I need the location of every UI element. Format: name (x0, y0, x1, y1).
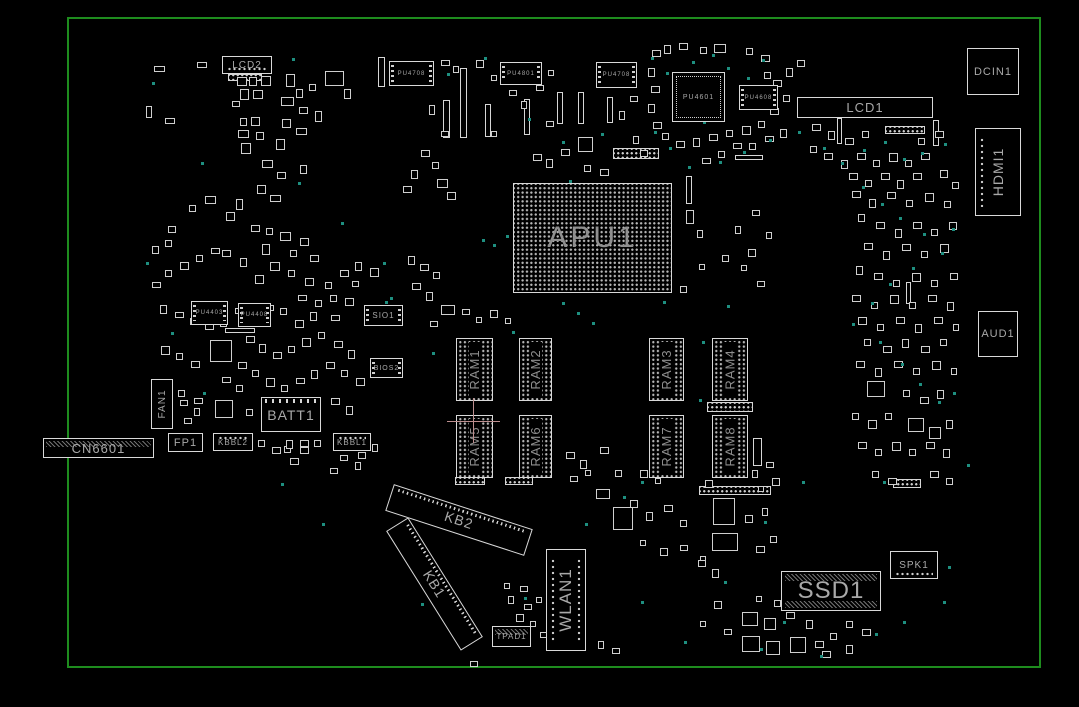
small-part (441, 305, 455, 315)
component-label-kbbl2: KBBL2 (214, 434, 252, 450)
via-dot (666, 72, 669, 75)
small-part (165, 118, 175, 124)
small-part (615, 470, 622, 477)
via-dot (421, 603, 424, 606)
component-label-ssd1: SSD1 (782, 572, 880, 610)
small-part (735, 226, 741, 234)
small-part (858, 442, 867, 449)
small-part (408, 256, 415, 265)
small-part (921, 251, 928, 258)
small-part (888, 478, 897, 485)
small-part (718, 151, 725, 158)
small-part (168, 226, 176, 233)
small-part (953, 324, 959, 331)
via-dot (883, 481, 886, 484)
small-part (226, 212, 235, 221)
component-apu1[interactable]: APU1 (513, 183, 672, 293)
component-label-kbbl1: KBBL1 (334, 434, 370, 450)
small-part (758, 486, 764, 492)
slot-footprint (557, 92, 563, 124)
component-lcd1[interactable]: LCD1 (797, 97, 933, 118)
component-cn6601[interactable]: CN6601 (43, 438, 154, 458)
small-part (358, 452, 366, 459)
small-part (700, 621, 706, 627)
small-part (865, 180, 872, 187)
component-spk1[interactable]: SPK1 (890, 551, 938, 579)
small-part (881, 173, 890, 180)
small-part (258, 440, 265, 447)
small-part (702, 158, 711, 164)
component-tpad1[interactable]: TPAD1 (492, 626, 531, 647)
small-part (259, 344, 266, 353)
component-label-ram2: RAM2 (505, 354, 566, 385)
small-part (612, 648, 620, 654)
small-part (240, 258, 247, 267)
via-dot (654, 131, 657, 134)
component-kbbl2[interactable]: KBBL2 (213, 433, 253, 451)
small-part (874, 273, 883, 280)
via-dot (702, 341, 705, 344)
component-pu4708-b[interactable]: PU4708 (596, 62, 637, 88)
small-part (281, 97, 294, 106)
small-part (908, 418, 924, 432)
small-part (521, 101, 527, 109)
small-part (896, 317, 905, 324)
small-part (662, 133, 669, 140)
small-part (432, 162, 439, 169)
via-dot (967, 464, 970, 467)
small-part (546, 159, 553, 168)
small-part (318, 332, 325, 339)
small-part (912, 273, 921, 282)
small-part (196, 255, 203, 262)
small-part (613, 507, 633, 530)
small-part (686, 210, 694, 224)
small-part (915, 324, 922, 333)
small-part (277, 172, 286, 179)
small-part (873, 160, 880, 167)
small-part (300, 238, 309, 246)
component-ram8[interactable]: RAM8 (712, 415, 748, 478)
small-part (282, 119, 291, 128)
component-label-pu4403: PU4403 (192, 302, 227, 324)
small-part (864, 243, 873, 250)
small-part (712, 569, 719, 578)
small-part (845, 138, 854, 145)
small-part (295, 320, 304, 328)
component-bios2[interactable]: BIOS2 (370, 358, 403, 378)
component-label-pu4608: PU4608 (740, 86, 777, 109)
via-dot (921, 152, 924, 155)
small-part (679, 43, 688, 50)
small-part (935, 131, 944, 138)
small-part (533, 154, 542, 161)
small-part (699, 264, 705, 270)
small-part (862, 131, 869, 138)
small-part (630, 96, 638, 102)
small-part (240, 118, 247, 126)
component-label-ram5: RAM5 (444, 429, 505, 464)
small-part (648, 68, 655, 77)
via-dot (944, 143, 947, 146)
component-pu4801[interactable]: PU4801 (500, 62, 542, 85)
component-batt1[interactable]: BATT1 (261, 397, 321, 432)
small-part (709, 134, 718, 141)
component-ram3[interactable]: RAM3 (649, 338, 684, 401)
small-part (680, 545, 688, 551)
small-part (154, 66, 165, 72)
small-part (786, 68, 793, 77)
small-part (756, 546, 765, 553)
via-dot (203, 392, 206, 395)
component-label-ram7: RAM7 (636, 430, 697, 463)
small-part (920, 397, 929, 404)
component-ram5[interactable]: RAM5 (456, 415, 493, 478)
small-part (598, 641, 604, 649)
small-part (257, 185, 266, 194)
small-part (165, 270, 172, 277)
pin-header (707, 402, 753, 412)
small-part (546, 121, 554, 127)
small-part (713, 498, 735, 525)
small-part (828, 131, 835, 140)
small-part (246, 409, 253, 416)
small-part (340, 455, 348, 461)
small-part (184, 418, 192, 424)
component-pu4708-a[interactable]: PU4708 (389, 61, 434, 86)
small-part (352, 281, 359, 287)
small-part (742, 636, 760, 652)
small-part (273, 352, 282, 359)
via-dot (881, 203, 884, 206)
small-part (783, 95, 790, 102)
small-part (741, 265, 747, 271)
small-part (430, 321, 438, 327)
small-part (578, 137, 593, 152)
via-dot (760, 648, 763, 651)
small-part (180, 262, 189, 270)
via-dot (862, 186, 865, 189)
slot-footprint (735, 155, 763, 160)
small-part (429, 105, 435, 115)
via-dot (512, 331, 515, 334)
via-dot (948, 566, 951, 569)
small-part (764, 72, 771, 79)
small-part (246, 336, 255, 343)
small-part (236, 385, 243, 392)
small-part (288, 270, 295, 277)
small-part (326, 362, 335, 369)
component-pu4403[interactable]: PU4403 (191, 301, 228, 325)
small-part (288, 346, 295, 353)
small-part (856, 361, 865, 368)
slot-footprint (578, 92, 584, 124)
component-label-lcd1: LCD1 (798, 98, 932, 117)
small-part (895, 229, 902, 238)
small-part (909, 449, 916, 456)
boardview-canvas[interactable]: LCD2PU4708PU4801PU4708PU4601PU4608LCD1DC… (0, 0, 1079, 707)
component-label-ram6: RAM6 (505, 431, 566, 462)
small-part (749, 143, 756, 150)
small-part (857, 153, 866, 160)
component-ram2[interactable]: RAM2 (519, 338, 552, 401)
small-part (256, 132, 264, 140)
small-part (356, 378, 365, 386)
via-dot (724, 581, 727, 584)
small-part (913, 368, 920, 375)
small-part (858, 214, 865, 222)
small-part (570, 476, 578, 482)
small-part (281, 385, 288, 392)
small-part (251, 117, 260, 126)
small-part (348, 350, 355, 359)
small-part (676, 141, 685, 148)
small-part (296, 128, 307, 135)
small-part (748, 249, 756, 257)
small-part (619, 111, 625, 120)
small-part (334, 341, 343, 348)
component-label-pu4801: PU4801 (501, 63, 541, 84)
small-part (633, 136, 639, 144)
via-dot (727, 67, 730, 70)
small-part (441, 60, 450, 66)
small-part (175, 312, 184, 318)
component-fp1[interactable]: FP1 (168, 433, 203, 452)
small-part (824, 153, 833, 160)
small-part (722, 255, 729, 262)
small-part (305, 278, 314, 286)
via-dot (699, 399, 702, 402)
small-part (238, 130, 249, 138)
component-pu4408[interactable]: PU4408 (238, 303, 271, 327)
small-part (509, 90, 517, 96)
component-label-batt1: BATT1 (262, 398, 320, 431)
small-part (508, 596, 514, 604)
small-part (651, 86, 660, 93)
small-part (222, 250, 231, 257)
small-part (868, 420, 877, 429)
small-part (325, 71, 344, 86)
small-part (887, 192, 896, 199)
small-part (421, 150, 430, 157)
pin-header (613, 148, 659, 159)
component-label-pu4708-a: PU4708 (390, 62, 433, 85)
component-label-pu4708-b: PU4708 (597, 63, 636, 87)
via-dot (712, 54, 715, 57)
via-dot (528, 118, 531, 121)
small-part (370, 268, 379, 277)
small-part (152, 282, 161, 288)
small-part (176, 353, 183, 360)
component-ram6[interactable]: RAM6 (519, 415, 552, 478)
small-part (766, 462, 774, 468)
component-fan1[interactable]: FAN1 (151, 379, 173, 429)
small-part (194, 398, 203, 404)
via-dot (743, 151, 746, 154)
via-dot (884, 141, 887, 144)
component-kbbl1[interactable]: KBBL1 (333, 433, 371, 451)
small-part (758, 121, 765, 128)
small-part (746, 48, 753, 55)
small-part (340, 270, 349, 277)
small-part (680, 520, 687, 527)
small-part (806, 620, 813, 629)
small-part (146, 106, 152, 118)
small-part (714, 601, 722, 609)
small-part (286, 74, 295, 87)
small-part (780, 129, 787, 138)
via-dot (783, 621, 786, 624)
via-dot (562, 302, 565, 305)
via-dot (585, 523, 588, 526)
small-part (505, 318, 511, 324)
small-part (726, 130, 733, 137)
via-dot (943, 601, 946, 604)
small-part (344, 89, 351, 99)
component-ram7[interactable]: RAM7 (649, 415, 684, 478)
small-part (453, 66, 459, 73)
via-dot (899, 217, 902, 220)
via-dot (577, 312, 580, 315)
component-label-wlan1: WLAN1 (516, 581, 616, 619)
small-part (849, 173, 858, 180)
via-dot (493, 244, 496, 247)
small-part (934, 317, 943, 324)
component-label-ram1: RAM1 (444, 352, 505, 387)
via-dot (669, 147, 672, 150)
small-part (412, 283, 421, 290)
small-part (211, 248, 220, 254)
component-ram1[interactable]: RAM1 (456, 338, 493, 401)
component-label-spk1: SPK1 (891, 552, 937, 578)
via-dot (889, 283, 892, 286)
small-part (266, 378, 275, 387)
small-part (596, 489, 610, 499)
small-part (600, 169, 609, 176)
slot-footprint (378, 57, 385, 87)
pin-header (455, 477, 485, 485)
small-part (640, 540, 646, 546)
component-ssd1[interactable]: SSD1 (781, 571, 881, 611)
small-part (253, 90, 263, 99)
component-label-lcd2: LCD2 (223, 57, 271, 73)
small-part (302, 338, 311, 347)
small-part (903, 390, 910, 397)
small-part (921, 346, 930, 353)
component-label-pu4408: PU4408 (239, 304, 270, 326)
small-part (937, 390, 944, 399)
component-label-ram8: RAM8 (700, 430, 761, 464)
via-dot (322, 523, 325, 526)
small-part (300, 440, 309, 447)
component-pu4608[interactable]: PU4608 (739, 85, 778, 110)
component-label-apu1: APU1 (514, 184, 671, 292)
component-pu4601[interactable]: PU4601 (672, 72, 725, 122)
small-part (762, 508, 768, 516)
component-ram4[interactable]: RAM4 (712, 338, 748, 401)
component-label-fp1: FP1 (169, 434, 202, 451)
small-part (766, 641, 780, 655)
small-part (752, 470, 758, 478)
small-part (403, 186, 412, 193)
slot-footprint (225, 328, 255, 333)
component-aud1[interactable]: AUD1 (978, 311, 1018, 357)
small-part (951, 368, 957, 375)
via-dot (875, 633, 878, 636)
small-part (852, 191, 861, 198)
small-part (241, 143, 251, 154)
small-part (189, 205, 196, 212)
small-part (210, 340, 232, 362)
small-part (932, 361, 941, 370)
small-part (561, 149, 570, 156)
small-part (600, 447, 609, 454)
small-part (262, 160, 273, 168)
small-part (810, 146, 817, 153)
small-part (490, 310, 498, 318)
via-dot (802, 481, 805, 484)
component-label-dcin1: DCIN1 (968, 49, 1018, 94)
pin-header (885, 126, 925, 134)
small-part (790, 637, 806, 653)
small-part (215, 400, 233, 418)
small-part (664, 45, 671, 54)
small-part (867, 381, 885, 397)
small-part (355, 462, 361, 470)
via-dot (601, 133, 604, 136)
component-sio1[interactable]: SIO1 (364, 305, 403, 326)
via-dot (281, 483, 284, 486)
component-wlan1[interactable]: WLAN1 (546, 549, 586, 651)
via-dot (727, 305, 730, 308)
small-part (290, 250, 297, 257)
small-part (197, 62, 207, 68)
slot-footprint (837, 118, 842, 144)
slot-footprint (460, 68, 467, 138)
small-part (655, 478, 661, 484)
small-part (931, 280, 938, 287)
small-part (548, 70, 554, 76)
small-part (893, 280, 900, 287)
small-part (330, 468, 338, 474)
small-part (944, 201, 951, 208)
small-part (852, 413, 859, 420)
via-dot (432, 352, 435, 355)
small-part (476, 60, 484, 68)
via-dot (684, 641, 687, 644)
small-part (872, 471, 879, 478)
small-part (310, 255, 319, 262)
via-dot (623, 496, 626, 499)
small-part (191, 361, 200, 368)
small-part (846, 645, 853, 654)
small-part (905, 160, 912, 167)
via-dot (641, 601, 644, 604)
small-part (290, 458, 299, 465)
small-part (797, 60, 805, 67)
component-lcd2[interactable]: LCD2 (222, 56, 272, 74)
via-dot (798, 131, 801, 134)
small-part (724, 629, 732, 635)
small-part (491, 75, 497, 81)
small-part (752, 210, 760, 216)
via-dot (592, 322, 595, 325)
component-dcin1[interactable]: DCIN1 (967, 48, 1019, 95)
component-label-sio1: SIO1 (365, 306, 402, 325)
small-part (238, 362, 247, 369)
small-part (566, 452, 575, 459)
component-hdmi1[interactable]: HDMI1 (975, 128, 1021, 216)
